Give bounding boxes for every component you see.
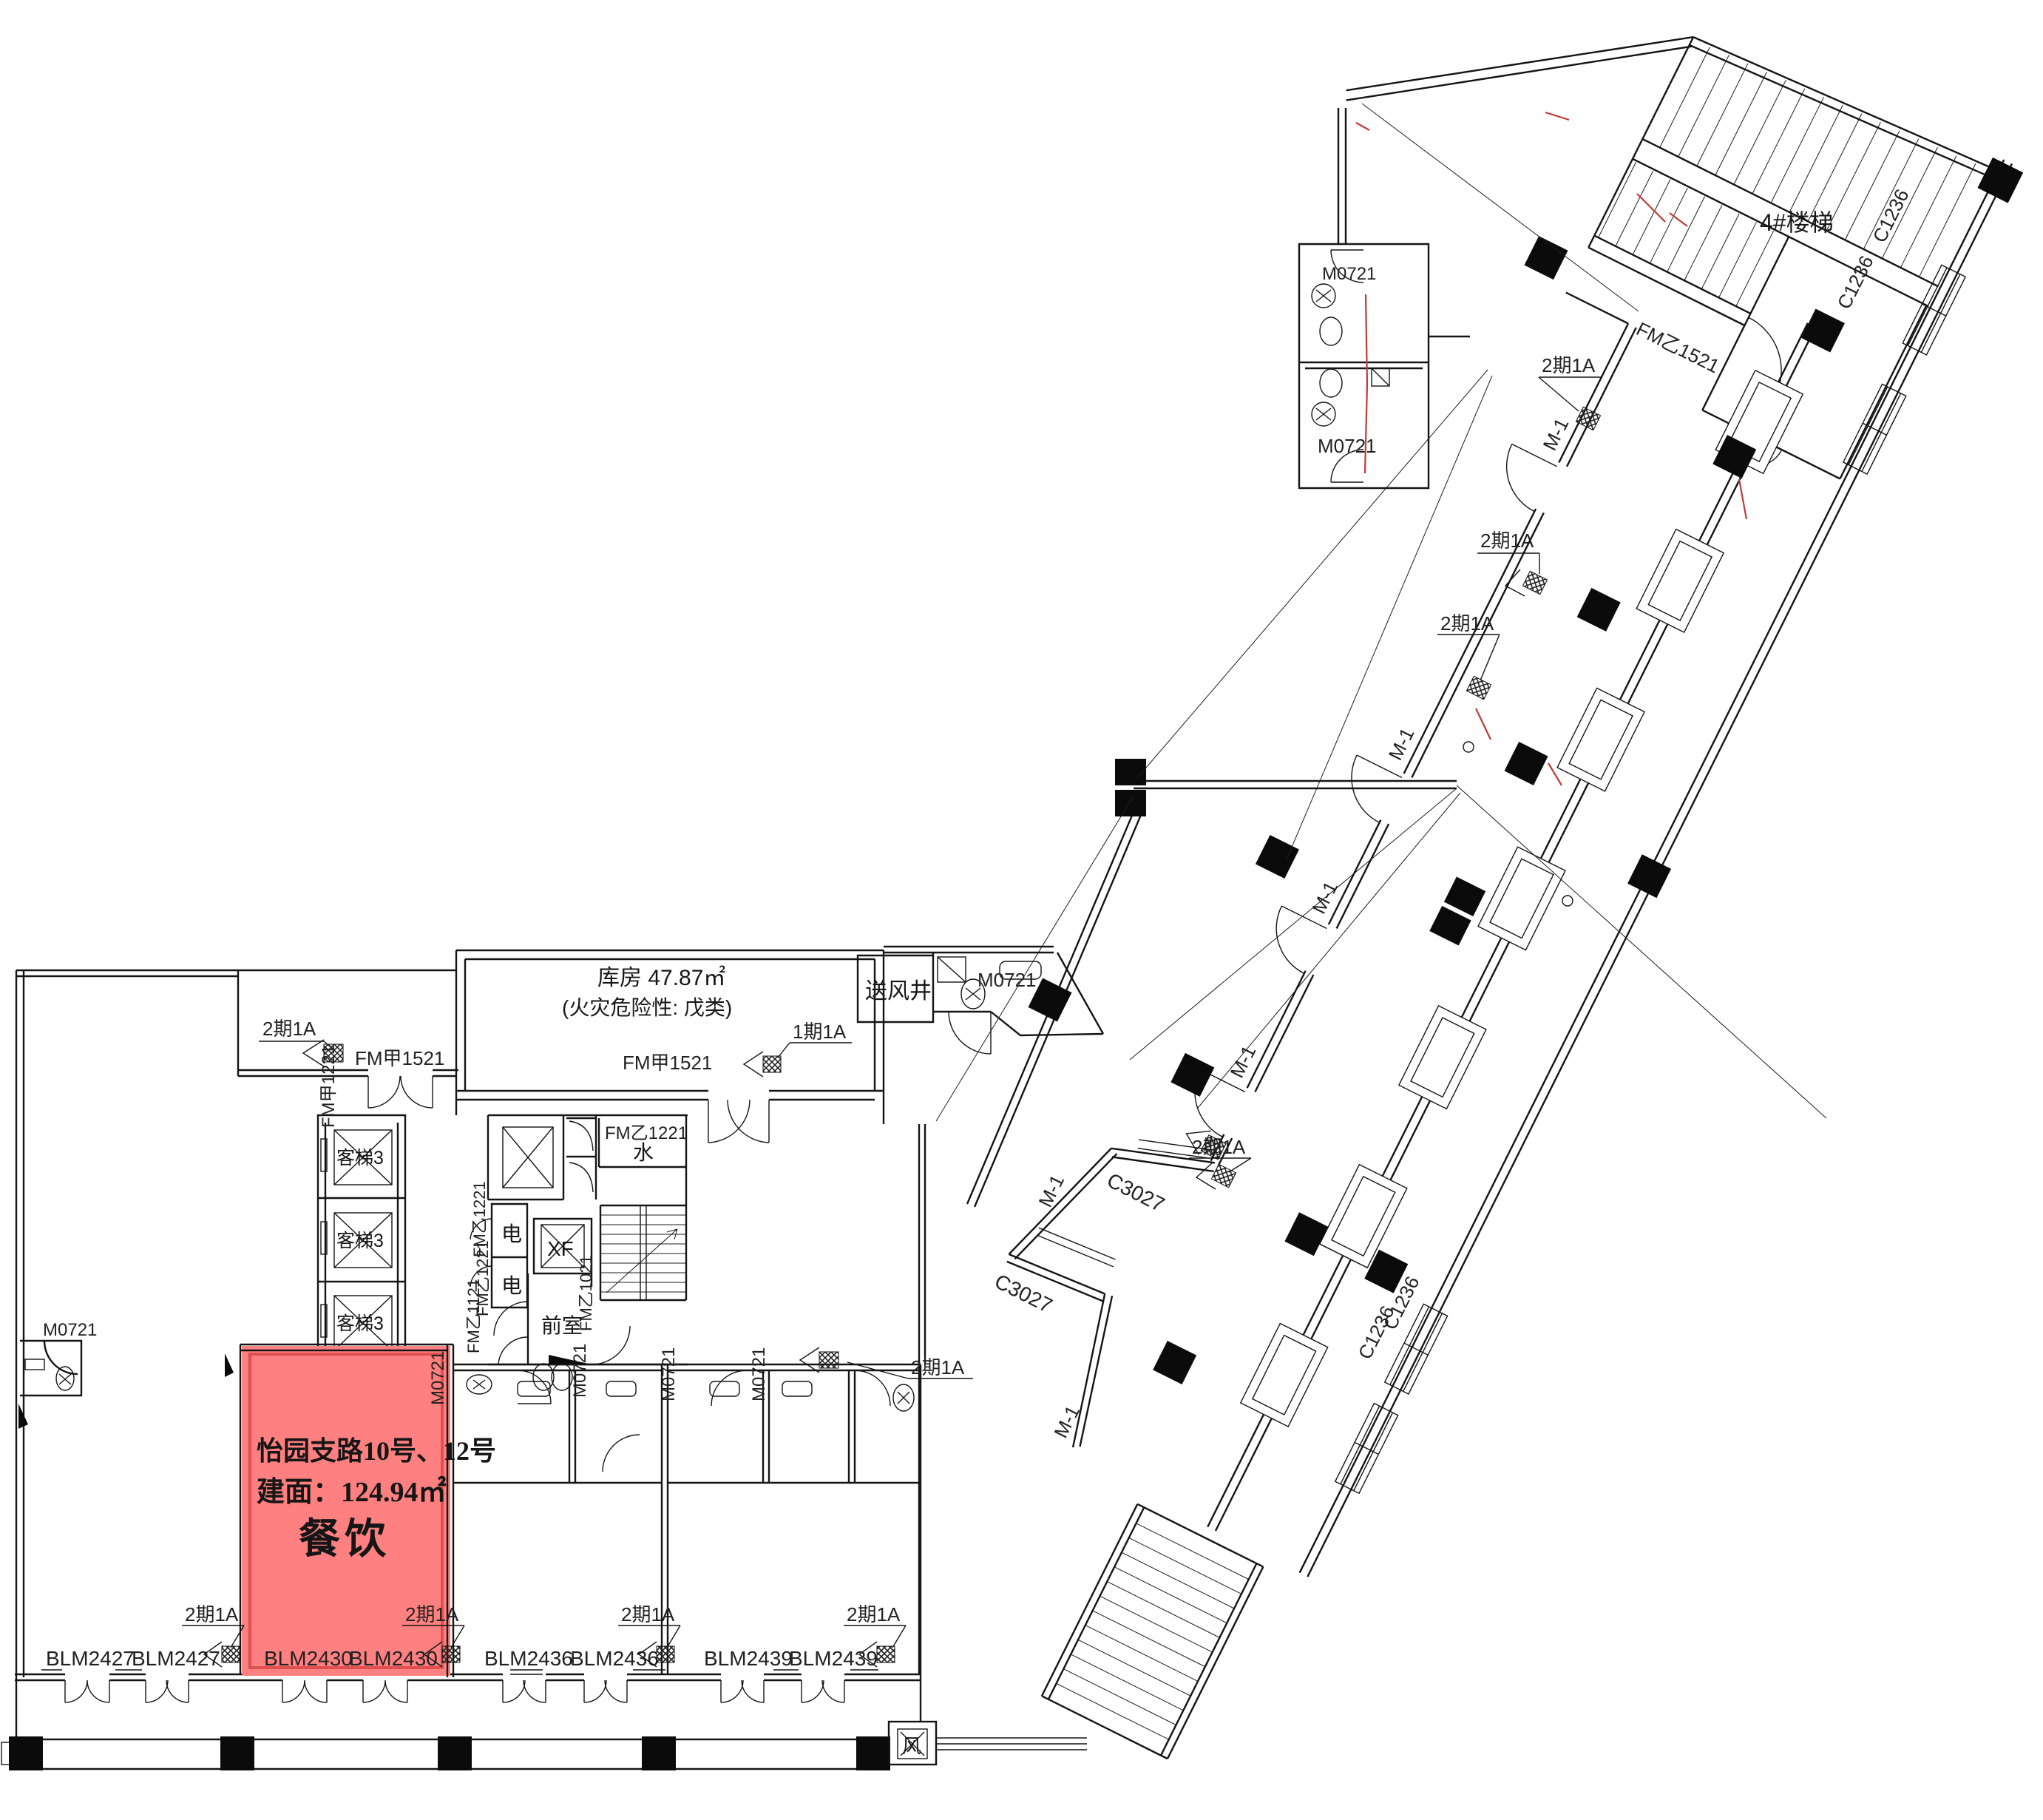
outdoor-stair [1042, 1504, 1263, 1759]
window-label-c3027: C3027 [991, 1270, 1056, 1318]
highlight-use: 餐饮 [299, 1517, 390, 1563]
phase2-label: 2期1A [262, 1018, 316, 1040]
shop-label-blm2427: BLM2427 [46, 1647, 135, 1670]
room-label-xf: XF [547, 1237, 574, 1260]
shop-label-blm2430: BLM2430 [349, 1647, 438, 1670]
room-label-elec: 电 [501, 1222, 522, 1245]
room-label-storage: 库房 47.87㎡ [597, 966, 725, 990]
highlight-area: 建面：124.94㎡ [257, 1476, 447, 1508]
door-label-m0721: M0721 [1318, 435, 1377, 457]
door-label-fmyi1021: FM乙1021 [577, 1255, 595, 1331]
shop-label-blm2436: BLM2436 [484, 1647, 573, 1670]
room-label-airshaft: 送风井 [865, 979, 932, 1004]
room-label-lift: 客梯3 [336, 1148, 384, 1168]
room-label-fan: 风 [902, 1735, 921, 1757]
phase2-label: 2期1A [1480, 530, 1534, 552]
shop-label-blm2427: BLM2427 [132, 1647, 220, 1670]
right-wing: FM乙1521 [745, 0, 2043, 1583]
door-label-fmyi1121: FM乙1121 [464, 1279, 483, 1353]
window-label-c3027: C3027 [1103, 1168, 1168, 1217]
highlight-unit[interactable]: 怡园支路10号、12号 建面：124.94㎡ 餐饮 [240, 1344, 496, 1677]
highlight-fill [242, 1346, 450, 1676]
junction [936, 104, 1826, 1207]
door-label-m0721: M0721 [570, 1344, 590, 1398]
room-label-storage-note: (火灾危险性: 戊类) [562, 996, 732, 1019]
shop-label-blm2439: BLM2439 [704, 1647, 793, 1670]
room-label-lift: 客梯3 [336, 1313, 384, 1334]
room-label-stair4: 4#楼梯 [1760, 209, 1834, 236]
highlight-address: 怡园支路10号、12号 [257, 1436, 496, 1466]
floorplan-canvas: 怡园支路10号、12号 建面：124.94㎡ 餐饮 FM乙1521 [0, 0, 2043, 1820]
door-label-m0721: M0721 [978, 969, 1037, 991]
room-label-lift: 客梯3 [336, 1231, 384, 1251]
door-label-m0721: M0721 [43, 1320, 97, 1340]
door-label-m0721: M0721 [1322, 264, 1376, 284]
floorplan-svg: 怡园支路10号、12号 建面：124.94㎡ 餐饮 FM乙1521 [0, 0, 2043, 1820]
phase2-label: 2期1A [1192, 1136, 1246, 1158]
door-label-m0721: M0721 [659, 1347, 679, 1401]
phase2-label: 2期1A [1440, 612, 1494, 635]
phase2-label: 2期1A [185, 1603, 239, 1626]
door-label-m1: M-1 [1049, 1402, 1084, 1441]
shop-label-blm2430: BLM2430 [264, 1647, 353, 1670]
door-label-m0721: M0721 [749, 1347, 769, 1401]
door-label-m1: M-1 [1034, 1171, 1068, 1210]
phase2-label: 2期1A [911, 1356, 965, 1378]
room-label-elec: 电 [501, 1274, 522, 1297]
phase2-label: 2期1A [621, 1603, 675, 1626]
door-label-m1: M-1 [1539, 414, 1573, 453]
door-label-m0721: M0721 [428, 1351, 448, 1405]
phase2-label: 2期1A [405, 1603, 459, 1626]
door-label-fmjia1521: FM甲1521 [623, 1052, 712, 1074]
door-label-fmjia1521: FM甲1521 [355, 1047, 444, 1069]
window-label-c1236: C1236 [1868, 186, 1914, 246]
phase1-label: 1期1A [793, 1021, 847, 1043]
room-label-water: 水 [633, 1141, 654, 1164]
phase2-label: 2期1A [847, 1603, 901, 1626]
door-label-m1: M-1 [1226, 1042, 1261, 1081]
left-room-wc [20, 1341, 81, 1396]
phase2-label: 2期1A [1542, 354, 1596, 376]
door-label-m1: M-1 [1384, 724, 1419, 763]
door-label-fmyi1521: FM乙1521 [1633, 317, 1723, 377]
door-label-fmyi1221: FM乙1221 [605, 1123, 688, 1143]
